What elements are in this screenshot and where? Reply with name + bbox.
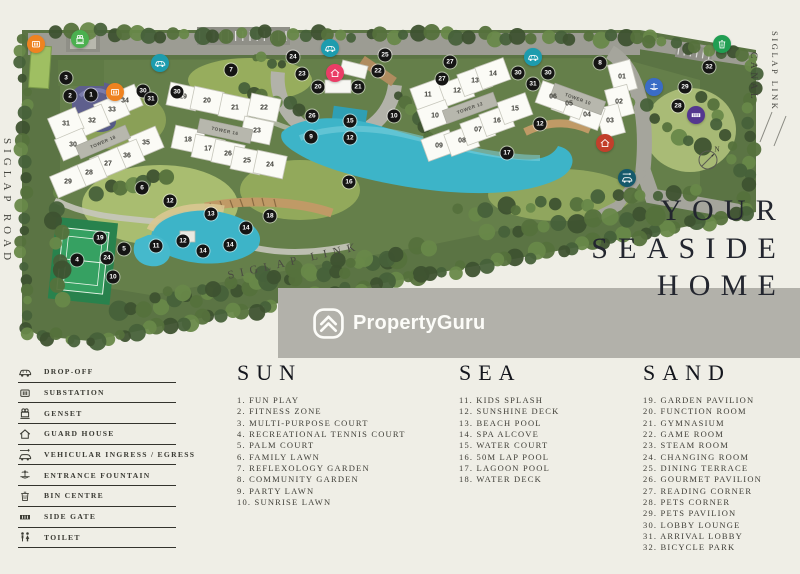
house-icon bbox=[18, 426, 33, 441]
legend-item: VEHICULAR INGRESS / EGRESS bbox=[18, 445, 176, 466]
substation-icon bbox=[18, 385, 33, 400]
legend-item: SIDE GATE bbox=[18, 507, 176, 528]
side-gate-icon bbox=[687, 106, 705, 124]
unit-number: 33 bbox=[108, 107, 116, 114]
legend-item-label: DROP-OFF bbox=[44, 367, 94, 376]
substation-icon bbox=[27, 35, 45, 53]
map-badge: 18 bbox=[264, 210, 277, 223]
map-badge: 6 bbox=[136, 182, 149, 195]
bin-icon bbox=[18, 488, 33, 503]
amenity-item: 24. CHANGING ROOM bbox=[643, 452, 762, 463]
tower-label: TOWER 16 bbox=[211, 126, 239, 137]
legend-item-label: SUBSTATION bbox=[44, 388, 105, 397]
unit-number: 30 bbox=[69, 142, 77, 149]
amenity-item: 18. WATER DECK bbox=[459, 474, 559, 485]
car-arrow-icon bbox=[18, 447, 33, 462]
map-badge: 12 bbox=[177, 235, 190, 248]
amenity-item: 1. FUN PLAY bbox=[237, 395, 406, 406]
legend-item-label: BIN CENTRE bbox=[44, 491, 104, 500]
amenity-item: 31. ARRIVAL LOBBY bbox=[643, 531, 762, 542]
amenity-item: 11. KIDS SPLASH bbox=[459, 395, 559, 406]
map-badge: 3 bbox=[60, 72, 73, 85]
unit-number: 24 bbox=[266, 162, 274, 169]
entrance-fountain-icon bbox=[645, 78, 663, 96]
amenity-column-title: SUN bbox=[237, 360, 406, 386]
unit-number: 29 bbox=[64, 179, 72, 186]
map-badge: 12 bbox=[164, 195, 177, 208]
tower-label: TOWER 12 bbox=[456, 101, 483, 115]
map-badge: 7 bbox=[225, 64, 238, 77]
amenity-item: 8. COMMUNITY GARDEN bbox=[237, 474, 406, 485]
amenity-column-title: SEA bbox=[459, 360, 559, 386]
site-plan-page: SIGLAP ROAD CANAL SIGLAP LINK SIGLAP LIN… bbox=[0, 0, 800, 574]
fountain-icon bbox=[18, 468, 33, 483]
amenity-item: 6. FAMILY LAWN bbox=[237, 452, 406, 463]
drop-off-icon bbox=[524, 48, 542, 66]
unit-number: 18 bbox=[184, 137, 192, 144]
map-badge: 31 bbox=[145, 93, 158, 106]
drop-off-icon bbox=[151, 54, 169, 72]
map-badge: 14 bbox=[224, 239, 237, 252]
unit-number: 13 bbox=[471, 78, 479, 85]
map-badge: 26 bbox=[306, 110, 319, 123]
guard-house-icon bbox=[326, 64, 344, 82]
legend-item-label: SIDE GATE bbox=[44, 512, 96, 521]
amenity-list: 1. FUN PLAY2. FITNESS ZONE3. MULTI-PURPO… bbox=[237, 395, 406, 508]
legend-item-label: GENSET bbox=[44, 409, 83, 418]
unit-number: 32 bbox=[88, 118, 96, 125]
tagline-line-1: YOUR bbox=[591, 192, 786, 230]
amenity-item: 13. BEACH POOL bbox=[459, 418, 559, 429]
amenity-item: 19. GARDEN PAVILION bbox=[643, 395, 762, 406]
unit-number: 05 bbox=[565, 101, 573, 108]
genset-icon bbox=[71, 30, 89, 48]
map-badge: 14 bbox=[240, 222, 253, 235]
amenity-item: 12. SUNSHINE DECK bbox=[459, 406, 559, 417]
amenity-item: 16. 50M LAP POOL bbox=[459, 452, 559, 463]
map-badge: 13 bbox=[205, 208, 218, 221]
amenity-column-sea: SEA11. KIDS SPLASH12. SUNSHINE DECK13. B… bbox=[459, 360, 559, 486]
map-badge: 30 bbox=[171, 86, 184, 99]
svg-text:N: N bbox=[715, 146, 720, 154]
amenity-column-title: SAND bbox=[643, 360, 762, 386]
map-badge: 9 bbox=[305, 131, 318, 144]
map-badge: 31 bbox=[527, 78, 540, 91]
unit-number: 08 bbox=[458, 138, 466, 145]
amenity-item: 25. DINING TERRACE bbox=[643, 463, 762, 474]
legend-item: GUARD HOUSE bbox=[18, 424, 176, 445]
map-badge: 21 bbox=[352, 81, 365, 94]
unit-number: 36 bbox=[123, 153, 131, 160]
map-badge: 22 bbox=[372, 65, 385, 78]
amenity-item: 22. GAME ROOM bbox=[643, 429, 762, 440]
map-badge: 17 bbox=[501, 147, 514, 160]
amenity-item: 2. FITNESS ZONE bbox=[237, 406, 406, 417]
road-label-siglap-link-bottom: SIGLAP LINK bbox=[227, 241, 363, 282]
legend-item: ENTRANCE FOUNTAIN bbox=[18, 465, 176, 486]
map-badge: 23 bbox=[296, 68, 309, 81]
unit-number: 28 bbox=[85, 170, 93, 177]
amenity-item: 23. STEAM ROOM bbox=[643, 440, 762, 451]
map-badge: 32 bbox=[703, 61, 716, 74]
amenity-list: 11. KIDS SPLASH12. SUNSHINE DECK13. BEAC… bbox=[459, 395, 559, 486]
unit-number: 04 bbox=[583, 112, 591, 119]
amenity-item: 26. GOURMET PAVILION bbox=[643, 474, 762, 485]
road-label-siglap-road: SIGLAP ROAD bbox=[1, 138, 13, 265]
map-badge: 15 bbox=[344, 115, 357, 128]
amenity-item: 15. WATER COURT bbox=[459, 440, 559, 451]
map-badge: 16 bbox=[343, 176, 356, 189]
amenity-column-sun: SUN1. FUN PLAY2. FITNESS ZONE3. MULTI-PU… bbox=[237, 360, 406, 508]
map-badge: 30 bbox=[542, 67, 555, 80]
amenity-item: 28. PETS CORNER bbox=[643, 497, 762, 508]
toilet-icon bbox=[18, 530, 33, 545]
unit-number: 25 bbox=[243, 158, 251, 165]
unit-number: 27 bbox=[104, 161, 112, 168]
genset-icon bbox=[18, 406, 33, 421]
unit-number: 20 bbox=[203, 98, 211, 105]
amenity-item: 30. LOBBY LOUNGE bbox=[643, 520, 762, 531]
amenity-item: 9. PARTY LAWN bbox=[237, 486, 406, 497]
legend-item-label: GUARD HOUSE bbox=[44, 429, 115, 438]
unit-number: 01 bbox=[618, 74, 626, 81]
map-badge: 11 bbox=[150, 240, 163, 253]
map-badge: 27 bbox=[444, 56, 457, 69]
unit-number: 15 bbox=[511, 106, 519, 113]
map-badge: 12 bbox=[344, 132, 357, 145]
amenity-item: 10. SUNRISE LAWN bbox=[237, 497, 406, 508]
unit-number: 06 bbox=[549, 94, 557, 101]
map-badge: 29 bbox=[679, 81, 692, 94]
unit-number: 34 bbox=[121, 98, 129, 105]
amenity-item: 27. READING CORNER bbox=[643, 486, 762, 497]
unit-number: 23 bbox=[253, 128, 261, 135]
map-badge: 30 bbox=[512, 67, 525, 80]
amenity-item: 29. PETS PAVILION bbox=[643, 508, 762, 519]
unit-number: 31 bbox=[62, 121, 70, 128]
map-badge: 8 bbox=[594, 57, 607, 70]
substation-icon bbox=[106, 83, 124, 101]
amenity-item: 7. REFLEXOLOGY GARDEN bbox=[237, 463, 406, 474]
unit-number: 21 bbox=[231, 105, 239, 112]
amenity-item: 17. LAGOON POOL bbox=[459, 463, 559, 474]
amenity-list: 19. GARDEN PAVILION20. FUNCTION ROOM21. … bbox=[643, 395, 762, 554]
tower-label: TOWER 18 bbox=[89, 134, 116, 149]
sidegate-icon bbox=[18, 509, 33, 524]
map-badge: 1 bbox=[85, 89, 98, 102]
unit-number: 26 bbox=[224, 151, 232, 158]
car-icon bbox=[18, 364, 33, 379]
vehicular-ingress-egress-icon bbox=[618, 169, 636, 187]
unit-number: 11 bbox=[424, 92, 431, 99]
map-badge: 25 bbox=[379, 49, 392, 62]
tagline: YOUR SEASIDE HOME bbox=[591, 192, 786, 305]
amenity-item: 32. BICYCLE PARK bbox=[643, 542, 762, 553]
amenity-item: 3. MULTI-PURPOSE COURT bbox=[237, 418, 406, 429]
map-badge: 10 bbox=[388, 110, 401, 123]
map-badge: 24 bbox=[287, 51, 300, 64]
tagline-line-2: SEASIDE bbox=[591, 230, 786, 268]
map-badge: 24 bbox=[101, 252, 114, 265]
map-badge: 14 bbox=[197, 245, 210, 258]
unit-number: 03 bbox=[606, 118, 614, 125]
unit-number: 35 bbox=[142, 140, 150, 147]
map-badge: 2 bbox=[64, 90, 77, 103]
legend-item: TOILET bbox=[18, 528, 176, 549]
legend-item: GENSET bbox=[18, 403, 176, 424]
amenity-item: 21. GYMNASIUM bbox=[643, 418, 762, 429]
unit-number: 14 bbox=[489, 71, 497, 78]
legend-item: SUBSTATION bbox=[18, 383, 176, 404]
amenity-item: 5. PALM COURT bbox=[237, 440, 406, 451]
unit-number: 22 bbox=[260, 105, 268, 112]
unit-number: 09 bbox=[435, 143, 443, 150]
unit-number: 07 bbox=[474, 127, 482, 134]
watermark-text: PropertyGuru bbox=[353, 312, 485, 335]
unit-number: 10 bbox=[431, 113, 439, 120]
compass-icon: N bbox=[693, 143, 723, 173]
amenity-column-sand: SAND19. GARDEN PAVILION20. FUNCTION ROOM… bbox=[643, 360, 762, 554]
guard-house-icon bbox=[596, 134, 614, 152]
map-badge: 4 bbox=[71, 254, 84, 267]
road-label-canal: CANAL bbox=[748, 52, 758, 102]
legend-item-label: ENTRANCE FOUNTAIN bbox=[44, 471, 151, 480]
legend-item-label: TOILET bbox=[44, 533, 81, 542]
map-badge: 5 bbox=[118, 243, 131, 256]
legend-icon-key: DROP-OFFSUBSTATIONGENSETGUARD HOUSEVEHIC… bbox=[18, 362, 176, 548]
drop-off-icon bbox=[321, 39, 339, 57]
legend-item-label: VEHICULAR INGRESS / EGRESS bbox=[44, 450, 195, 459]
propertyguru-logo-icon bbox=[312, 307, 345, 340]
map-badge: 19 bbox=[94, 232, 107, 245]
map-badge: 20 bbox=[312, 81, 325, 94]
unit-number: 16 bbox=[493, 118, 501, 125]
map-badge: 28 bbox=[672, 100, 685, 113]
bin-centre-icon bbox=[713, 35, 731, 53]
amenity-item: 20. FUNCTION ROOM bbox=[643, 406, 762, 417]
map-badge: 10 bbox=[107, 271, 120, 284]
legend-item: DROP-OFF bbox=[18, 362, 176, 383]
road-label-siglap-link-right: SIGLAP LINK bbox=[770, 31, 780, 111]
amenity-item: 14. SPA ALCOVE bbox=[459, 429, 559, 440]
map-badge: 12 bbox=[534, 118, 547, 131]
legend-item: BIN CENTRE bbox=[18, 486, 176, 507]
amenity-item: 4. RECREATIONAL TENNIS COURT bbox=[237, 429, 406, 440]
unit-number: 17 bbox=[204, 146, 212, 153]
tagline-line-3: HOME bbox=[591, 267, 786, 305]
unit-number: 12 bbox=[453, 88, 461, 95]
unit-number: 02 bbox=[615, 99, 623, 106]
map-badge: 27 bbox=[436, 73, 449, 86]
